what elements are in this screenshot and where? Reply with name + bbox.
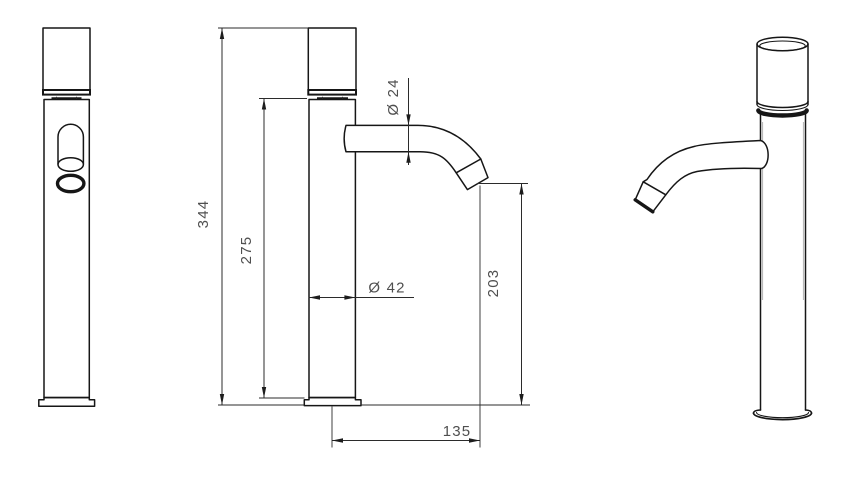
dimensions: 344 275 Ø 24 Ø 42 203 <box>195 28 530 448</box>
side-handle-cap <box>308 28 356 90</box>
arrow-right <box>344 295 355 299</box>
persp-handle-bottom-arc <box>757 102 808 108</box>
front-body <box>44 100 89 398</box>
arrow-down <box>519 394 523 405</box>
dimension-body-diameter: Ø 42 <box>309 280 415 300</box>
persp-handle-sides <box>757 44 808 105</box>
dimension-label-spout-tube-diameter: Ø 24 <box>385 78 402 115</box>
arrow-left <box>332 438 343 442</box>
dimension-label-overall-height: 344 <box>195 200 212 229</box>
persp-base-rim <box>757 413 809 418</box>
front-view <box>39 28 95 406</box>
arrow-down <box>220 394 224 405</box>
dimension-label-spout-reach: 135 <box>443 423 472 440</box>
dimension-label-spout-outlet-height: 203 <box>485 269 502 298</box>
side-spout <box>344 125 488 189</box>
technical-drawing: 344 275 Ø 24 Ø 42 203 <box>0 0 850 482</box>
front-handle-band <box>43 90 90 95</box>
dimension-upper-body-height: 275 <box>238 99 266 399</box>
dimension-overall-height: 344 <box>195 28 224 405</box>
dimension-label-upper-body-height: 275 <box>238 236 255 265</box>
side-base-plate <box>304 398 361 406</box>
front-spout-rim <box>58 158 83 172</box>
persp-body-shading <box>763 122 804 300</box>
front-spout-outlet <box>57 175 83 191</box>
arrow-up <box>406 152 410 163</box>
arrow-down <box>406 114 410 125</box>
arrow-up <box>220 28 224 39</box>
dimension-label-body-diameter: Ø 42 <box>368 280 405 297</box>
dimension-spout-reach: 135 <box>332 423 480 443</box>
front-base-plate <box>39 398 95 407</box>
persp-spout <box>635 141 768 212</box>
dimension-spout-outlet-height: 203 <box>485 184 524 406</box>
persp-dark-ring <box>758 111 806 116</box>
arrow-up <box>519 184 523 195</box>
front-handle-cap <box>43 28 90 90</box>
side-handle-band <box>308 90 356 95</box>
persp-base-flare <box>754 410 812 413</box>
arrow-up <box>262 99 266 110</box>
persp-handle-top-rim <box>760 41 806 51</box>
perspective-view <box>635 37 811 419</box>
arrow-down <box>262 387 266 398</box>
arrow-left <box>309 295 320 299</box>
drawing-canvas: 344 275 Ø 24 Ø 42 203 <box>0 0 850 482</box>
